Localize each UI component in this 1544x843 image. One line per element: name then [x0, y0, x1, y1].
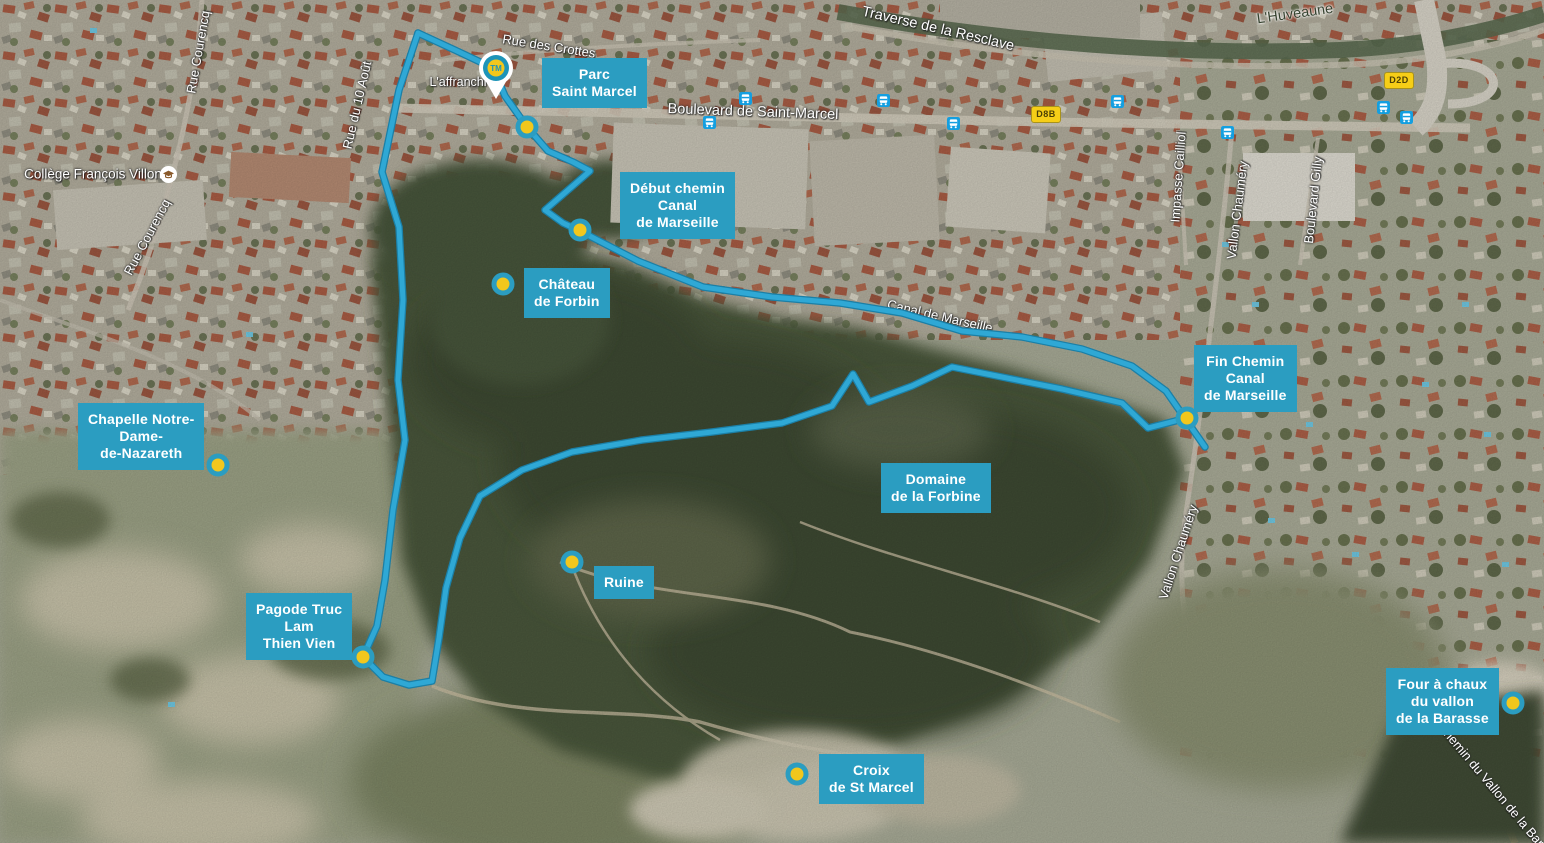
- start-marker-pin[interactable]: TM: [476, 49, 516, 101]
- street-label-lhuveaune: L'Huveaune: [1256, 1, 1334, 28]
- waypoint-marker-ruine[interactable]: [561, 551, 584, 574]
- street-label-rue-du-10-aout: Rue du 10 Août: [340, 60, 375, 151]
- waypoint-marker-croix-de-st-marcel[interactable]: [786, 763, 809, 786]
- street-label-boulevard-gilly: Boulevard Gilly: [1301, 156, 1325, 245]
- waypoint-label-chapelle-nazareth[interactable]: Chapelle Notre- Dame- de-Nazareth: [78, 403, 204, 470]
- waypoint-marker-parc-saint-marcel[interactable]: [516, 116, 539, 139]
- bus-stop-icon[interactable]: [877, 94, 890, 107]
- satellite-map[interactable]: Rue des Crottes L'affranchi Boulevard de…: [0, 0, 1544, 843]
- route-overlay: [0, 0, 1544, 843]
- bus-stop-icon[interactable]: [1221, 126, 1234, 139]
- bus-stop-icon[interactable]: [1111, 95, 1124, 108]
- street-label-boulevard-de-saint-marcel: Boulevard de Saint-Marcel: [667, 101, 838, 123]
- bus-stop-icon[interactable]: [1377, 101, 1390, 114]
- waypoint-label-chateau-de-forbin[interactable]: Château de Forbin: [524, 268, 610, 318]
- street-label-rue-courencq-upper: Rue Courencq: [183, 9, 212, 94]
- waypoint-label-domaine-de-la-forbine[interactable]: Domaine de la Forbine: [881, 463, 991, 513]
- route-path-canal: [418, 33, 1205, 447]
- street-label-chemin-du-vallon-de-la-barasse: Chemin du Vallon de la Barasse: [1435, 719, 1544, 843]
- waypoint-marker-four-a-chaux[interactable]: [1502, 692, 1525, 715]
- waypoint-label-croix-de-st-marcel[interactable]: Croix de St Marcel: [819, 754, 924, 804]
- bus-stop-icon[interactable]: [947, 117, 960, 130]
- waypoint-label-debut-chemin-canal[interactable]: Début chemin Canal de Marseille: [620, 172, 735, 239]
- waypoint-label-four-a-chaux[interactable]: Four à chaux du vallon de la Barasse: [1386, 668, 1499, 735]
- street-label-vallon-chaumery-upper: Vallon Chauméry: [1224, 160, 1251, 260]
- road-shield-d8b: D8B: [1031, 106, 1061, 123]
- street-label-impasse-cailliol: Impasse Cailliol: [1167, 131, 1188, 223]
- bus-stop-icon[interactable]: [1400, 111, 1413, 124]
- street-label-traverse-de-la-resclave: Traverse de la Resclave: [860, 4, 1015, 55]
- waypoint-marker-chateau-de-forbin[interactable]: [492, 273, 515, 296]
- waypoint-marker-debut-chemin-canal[interactable]: [569, 219, 592, 242]
- start-marker-label: TM: [490, 64, 502, 73]
- route-path-canal-casing: [418, 33, 1205, 447]
- waypoint-label-parc-saint-marcel[interactable]: Parc Saint Marcel: [542, 58, 647, 108]
- waypoint-label-ruine[interactable]: Ruine: [594, 566, 654, 599]
- street-label-canal-de-marseille: Canal de Marseille: [886, 297, 994, 336]
- bus-stop-icon[interactable]: [703, 116, 716, 129]
- bus-stop-icon[interactable]: [739, 92, 752, 105]
- street-label-college-francois-villon: Collège François Villon: [24, 167, 162, 182]
- waypoint-marker-pagode[interactable]: [352, 646, 375, 669]
- route-path-loop: [363, 33, 1183, 685]
- street-label-vallon-chaumery-lower: Vallon Chauméry: [1156, 503, 1201, 602]
- route-path-loop-casing: [363, 33, 1183, 685]
- waypoint-marker-chapelle-nazareth[interactable]: [207, 454, 230, 477]
- road-shield-d2d: D2D: [1384, 72, 1414, 89]
- satellite-imagery: [0, 0, 1544, 843]
- street-label-rue-courencq-lower: Rue Courencq: [121, 196, 174, 277]
- waypoint-label-fin-chemin-canal[interactable]: Fin Chemin Canal de Marseille: [1194, 345, 1297, 412]
- waypoint-label-pagode[interactable]: Pagode Truc Lam Thien Vien: [246, 593, 352, 660]
- school-icon[interactable]: [160, 166, 177, 183]
